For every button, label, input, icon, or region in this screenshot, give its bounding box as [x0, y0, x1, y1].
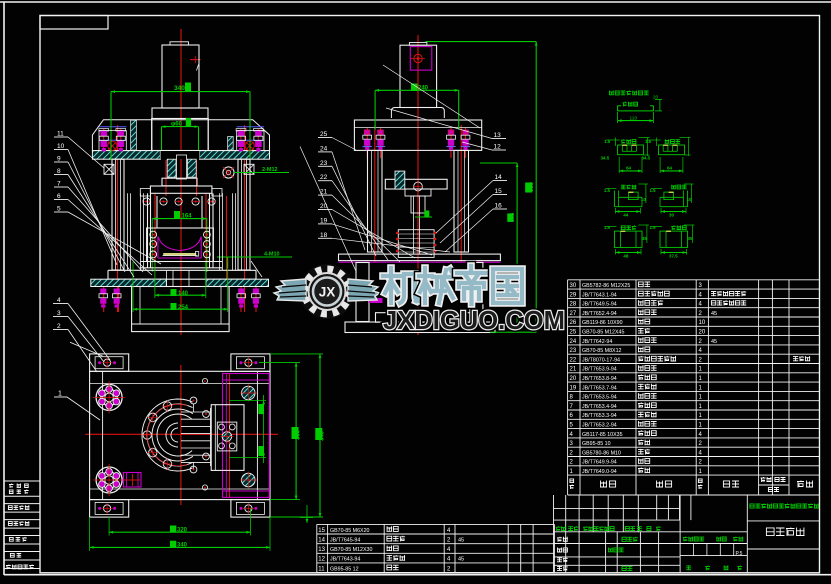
svg-text:10: 10	[687, 197, 692, 202]
svg-text:7: 7	[57, 181, 61, 188]
svg-text:6: 6	[57, 193, 61, 200]
svg-text:JB/T7653.8-94: JB/T7653.8-94	[582, 376, 617, 382]
svg-text:30: 30	[669, 213, 674, 218]
svg-text:11: 11	[57, 131, 64, 138]
svg-text:21: 21	[320, 189, 328, 196]
svg-text:13: 13	[494, 132, 502, 139]
svg-text:27: 27	[570, 311, 577, 317]
svg-text:JXDIGUO.COM: JXDIGUO.COM	[383, 307, 565, 335]
svg-text:10: 10	[641, 197, 646, 202]
svg-text:24: 24	[570, 339, 577, 345]
svg-text:JB/T7643.1-94: JB/T7643.1-94	[582, 292, 617, 298]
svg-text:20: 20	[570, 376, 577, 382]
svg-text:14: 14	[495, 174, 503, 181]
svg-text:300: 300	[296, 429, 302, 440]
svg-text:2-M12: 2-M12	[262, 167, 278, 173]
svg-text:23: 23	[570, 348, 577, 354]
svg-text:34.5: 34.5	[601, 155, 610, 160]
svg-text:110: 110	[630, 115, 638, 121]
svg-text:23: 23	[320, 160, 328, 167]
svg-text:4: 4	[57, 297, 61, 304]
svg-text:JB/T7653.4-94: JB/T7653.4-94	[582, 404, 617, 410]
svg-text:164: 164	[182, 214, 193, 220]
svg-text:44: 44	[623, 213, 628, 218]
svg-text:15: 15	[495, 188, 503, 195]
svg-text:30: 30	[570, 283, 577, 289]
svg-text:11: 11	[318, 566, 325, 572]
svg-text:140: 140	[178, 291, 189, 297]
svg-text:19: 19	[570, 385, 577, 391]
svg-text:45: 45	[711, 311, 717, 317]
svg-text:GB70-85 M12X45: GB70-85 M12X45	[582, 330, 624, 336]
svg-text:24: 24	[320, 145, 328, 152]
svg-text:20: 20	[320, 203, 328, 210]
svg-text:1.5: 1.5	[604, 225, 611, 230]
svg-text:1.5: 1.5	[650, 225, 657, 230]
svg-text:19: 19	[320, 217, 328, 224]
svg-text:10: 10	[699, 320, 706, 326]
svg-text:GB70-85 M6X20: GB70-85 M6X20	[330, 528, 370, 534]
svg-text:JB/T7645-94: JB/T7645-94	[330, 537, 360, 543]
svg-text:JB/T7649.0-94: JB/T7649.0-94	[582, 469, 617, 475]
svg-text:37.5: 37.5	[669, 254, 678, 259]
svg-text:JB/T7653.7-94: JB/T7653.7-94	[582, 385, 617, 391]
svg-text:GB70-85 M8X12: GB70-85 M8X12	[582, 348, 622, 354]
svg-text:26: 26	[570, 320, 577, 326]
svg-text:JX: JX	[319, 285, 336, 300]
svg-text:JB/T7653.9-94: JB/T7653.9-94	[582, 367, 617, 373]
svg-text:35: 35	[642, 236, 647, 241]
svg-text:3: 3	[57, 310, 61, 317]
svg-text:35: 35	[688, 236, 693, 241]
svg-text:22: 22	[570, 357, 577, 363]
svg-text:P.5: P.5	[736, 551, 743, 557]
svg-text:254: 254	[178, 305, 189, 311]
svg-text:20: 20	[653, 95, 659, 100]
svg-text:JB/T7643-94: JB/T7643-94	[330, 557, 360, 563]
svg-text:13: 13	[318, 547, 325, 553]
svg-text:16: 16	[495, 203, 503, 210]
svg-text:φ60: φ60	[171, 122, 183, 128]
svg-text:12: 12	[318, 557, 325, 563]
svg-text:45: 45	[458, 537, 464, 543]
svg-text:GB5780-86 M10: GB5780-86 M10	[582, 450, 621, 456]
svg-text:64: 64	[667, 165, 672, 170]
svg-text:JB/T7653.2-94: JB/T7653.2-94	[582, 423, 617, 429]
svg-text:20: 20	[699, 330, 706, 336]
svg-text:5: 5	[57, 206, 61, 213]
svg-text:JB/T7642-94: JB/T7642-94	[582, 339, 612, 345]
svg-text:9: 9	[57, 156, 61, 163]
svg-text:15: 15	[318, 528, 325, 534]
svg-text:GB95-85 12: GB95-85 12	[330, 566, 359, 572]
svg-text:GB117-85 10X35: GB117-85 10X35	[582, 432, 623, 438]
svg-text:JB/T7649.9-94: JB/T7649.9-94	[582, 460, 617, 466]
svg-text:GB5782-86 M12X25: GB5782-86 M12X25	[582, 283, 630, 289]
svg-text:45: 45	[711, 339, 717, 345]
svg-text:340: 340	[177, 543, 188, 549]
svg-text:34.5: 34.5	[642, 155, 651, 160]
svg-text:340: 340	[320, 430, 326, 441]
svg-text:64: 64	[626, 165, 631, 170]
svg-text:28: 28	[570, 302, 577, 308]
svg-text:41.5: 41.5	[259, 447, 265, 457]
svg-text:25: 25	[320, 131, 328, 138]
svg-text:1: 1	[58, 391, 62, 398]
svg-text:12: 12	[494, 144, 502, 151]
svg-text:2: 2	[57, 323, 61, 330]
svg-text:JB/T7649.5-94: JB/T7649.5-94	[582, 302, 617, 308]
svg-text:JB/T7653.5-94: JB/T7653.5-94	[582, 395, 617, 401]
svg-text:JB/T8070-17-94: JB/T8070-17-94	[582, 357, 620, 363]
svg-text:630: 630	[529, 181, 535, 192]
svg-text:8: 8	[57, 168, 61, 175]
svg-text:21: 21	[570, 367, 577, 373]
svg-text:48: 48	[623, 254, 628, 259]
svg-text:JB/T7653.3-94: JB/T7653.3-94	[582, 413, 617, 419]
svg-text:JB/T7652.4-94: JB/T7652.4-94	[582, 311, 617, 317]
svg-text:18: 18	[320, 232, 328, 239]
svg-text:GB119-86 10X90: GB119-86 10X90	[582, 320, 623, 326]
svg-text:29: 29	[570, 292, 577, 298]
svg-text:14: 14	[318, 537, 325, 543]
svg-text:GB70-85 M12X30: GB70-85 M12X30	[330, 547, 372, 553]
svg-text:22: 22	[320, 174, 328, 181]
svg-text:340: 340	[174, 85, 185, 92]
svg-text:40.5: 40.5	[259, 405, 265, 415]
svg-text:GB95-85 10: GB95-85 10	[582, 441, 611, 447]
svg-text:10: 10	[57, 143, 65, 150]
svg-text:4-M10: 4-M10	[264, 252, 280, 258]
svg-text:25: 25	[570, 330, 577, 336]
svg-text:320: 320	[177, 528, 188, 534]
svg-text:45: 45	[458, 557, 464, 563]
svg-text:305: 305	[510, 213, 516, 222]
